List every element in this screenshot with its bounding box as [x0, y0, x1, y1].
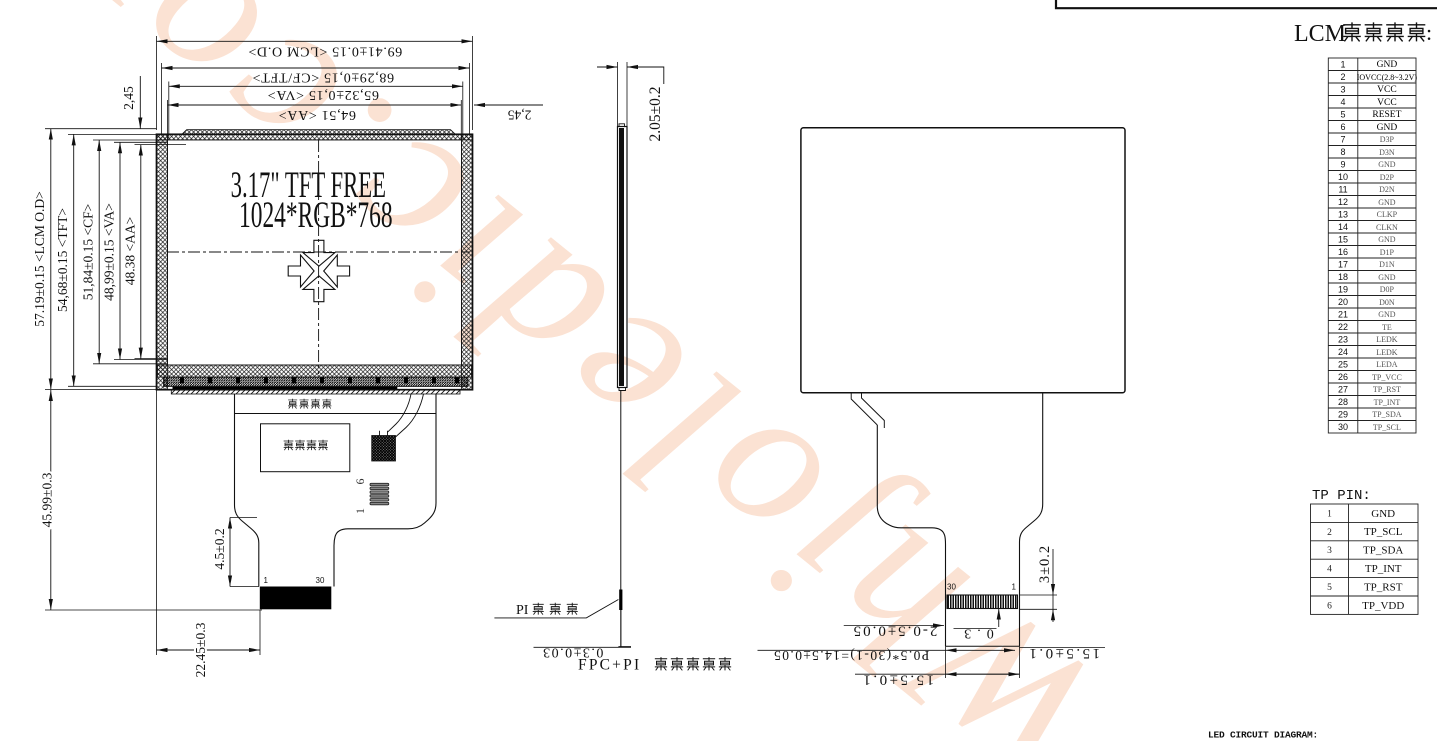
svg-text:GND: GND — [1378, 235, 1396, 244]
svg-text:VCC: VCC — [1377, 85, 1397, 95]
svg-text:D0N: D0N — [1379, 298, 1395, 307]
svg-text:TE: TE — [1382, 323, 1392, 332]
svg-text:2: 2 — [1327, 528, 1332, 538]
svg-text:69.41±0.15 <LCM O.D>: 69.41±0.15 <LCM O.D> — [248, 44, 403, 59]
svg-text:6: 6 — [1327, 601, 1332, 611]
svg-text:25: 25 — [1338, 359, 1348, 369]
svg-text:30: 30 — [316, 576, 325, 585]
svg-text:1: 1 — [264, 576, 269, 585]
svg-text:D3P: D3P — [1380, 135, 1395, 144]
svg-text:P0.5*(30-1)=14.5±0.05: P0.5*(30-1)=14.5±0.05 — [773, 648, 930, 663]
svg-text:PI: PI — [516, 603, 529, 618]
svg-text:2,45: 2,45 — [121, 86, 136, 110]
svg-text:15.5±0.1: 15.5±0.1 — [861, 672, 934, 688]
svg-text:1: 1 — [1327, 509, 1332, 519]
svg-text:GND: GND — [1378, 273, 1396, 282]
svg-text:51,84±0.15 <CF>: 51,84±0.15 <CF> — [81, 204, 96, 301]
svg-text:65,32±0,15 <VA>: 65,32±0,15 <VA> — [267, 87, 379, 102]
svg-text:GND: GND — [1377, 60, 1398, 70]
svg-text:3±0.2: 3±0.2 — [1037, 545, 1053, 583]
svg-text:30: 30 — [1338, 422, 1348, 432]
svg-text:4: 4 — [1327, 565, 1332, 575]
svg-text:RESET: RESET — [1372, 110, 1401, 120]
svg-text:2: 2 — [1340, 72, 1345, 82]
svg-text:17: 17 — [1338, 259, 1348, 269]
svg-text:48.38 <AA>: 48.38 <AA> — [122, 217, 137, 285]
svg-text:8: 8 — [1340, 147, 1345, 157]
svg-text:TP_RST: TP_RST — [1373, 385, 1401, 394]
svg-text:6: 6 — [353, 479, 367, 485]
svg-text:22.45±0.3: 22.45±0.3 — [193, 622, 208, 677]
svg-text:6: 6 — [1340, 122, 1345, 132]
svg-text:7: 7 — [1340, 134, 1345, 144]
svg-text:1: 1 — [1340, 60, 1345, 70]
svg-text:D3N: D3N — [1379, 148, 1395, 157]
svg-text:15.5±0.1: 15.5±0.1 — [1027, 645, 1100, 661]
svg-text:9: 9 — [1340, 159, 1345, 169]
svg-text:TP_VCC: TP_VCC — [1372, 373, 1402, 382]
svg-text:TP_INT: TP_INT — [1374, 398, 1401, 407]
svg-text:23: 23 — [1338, 334, 1348, 344]
svg-text:GND: GND — [1378, 160, 1396, 169]
svg-text:24: 24 — [1338, 347, 1348, 357]
svg-text:5: 5 — [1327, 583, 1332, 593]
svg-text:GND: GND — [1377, 123, 1398, 133]
svg-text:20: 20 — [1338, 297, 1348, 307]
svg-text:2.05±0.2: 2.05±0.2 — [647, 86, 664, 141]
svg-text:D2P: D2P — [1380, 173, 1395, 182]
svg-text:TP_SCL: TP_SCL — [1364, 526, 1403, 538]
svg-text:0.3: 0.3 — [958, 626, 994, 641]
svg-text:CLKN: CLKN — [1376, 223, 1398, 232]
svg-text:4.5±0.2: 4.5±0.2 — [212, 528, 227, 569]
svg-text:TP_SDA: TP_SDA — [1372, 410, 1402, 419]
svg-text:19: 19 — [1338, 284, 1348, 294]
svg-text:22: 22 — [1338, 322, 1348, 332]
svg-text:2-0.5±0.05: 2-0.5±0.05 — [852, 623, 938, 639]
svg-text:57.19±0.15 <LCM O.D>: 57.19±0.15 <LCM O.D> — [32, 191, 47, 327]
svg-text:TP_SDA: TP_SDA — [1363, 545, 1403, 557]
svg-text:TP_INT: TP_INT — [1365, 563, 1402, 575]
svg-text:TP_VDD: TP_VDD — [1362, 600, 1404, 612]
svg-text:4: 4 — [1340, 97, 1345, 107]
svg-text:1024*RGB*768: 1024*RGB*768 — [239, 195, 393, 236]
svg-text:LEDA: LEDA — [1376, 360, 1398, 369]
svg-text:LCM: LCM — [1294, 21, 1346, 47]
svg-text:IOVCC(2.8~3.2V): IOVCC(2.8~3.2V) — [1357, 73, 1418, 82]
svg-text:LEDK: LEDK — [1376, 335, 1398, 344]
svg-text:45.99±0.3: 45.99±0.3 — [40, 472, 55, 527]
svg-text:CLKP: CLKP — [1377, 210, 1398, 219]
svg-text:18: 18 — [1338, 272, 1348, 282]
svg-text:GND: GND — [1371, 508, 1395, 520]
svg-text:TP PIN:: TP PIN: — [1312, 488, 1371, 504]
svg-text:1: 1 — [353, 508, 367, 514]
svg-text:10: 10 — [1338, 172, 1348, 182]
svg-text:GND: GND — [1378, 198, 1396, 207]
svg-text:FPC+PI: FPC+PI — [578, 657, 641, 674]
svg-text:VCC: VCC — [1377, 98, 1397, 108]
svg-text:3: 3 — [1327, 546, 1332, 556]
svg-text:12: 12 — [1338, 197, 1348, 207]
svg-text:D1P: D1P — [1380, 248, 1395, 257]
svg-text:21: 21 — [1338, 309, 1348, 319]
svg-text:3: 3 — [1340, 85, 1345, 95]
svg-text:11: 11 — [1338, 184, 1347, 194]
svg-text:16: 16 — [1338, 247, 1348, 257]
svg-text:2,45: 2,45 — [507, 108, 531, 123]
svg-text:13: 13 — [1338, 209, 1348, 219]
svg-text:LEDK: LEDK — [1376, 348, 1398, 357]
svg-text:29: 29 — [1338, 409, 1348, 419]
svg-text:68,29±0,15 <CF/TFT>: 68,29±0,15 <CF/TFT> — [252, 69, 394, 84]
svg-text::: : — [1426, 20, 1432, 45]
svg-text:14: 14 — [1338, 222, 1348, 232]
svg-text:26: 26 — [1338, 372, 1348, 382]
svg-text:28: 28 — [1338, 397, 1348, 407]
svg-text:15: 15 — [1338, 234, 1348, 244]
svg-text:30: 30 — [947, 583, 956, 592]
svg-text:27: 27 — [1338, 384, 1348, 394]
svg-text:GND: GND — [1378, 310, 1396, 319]
svg-text:5: 5 — [1340, 110, 1345, 120]
svg-text:1: 1 — [1012, 583, 1017, 592]
svg-text:D0P: D0P — [1380, 285, 1395, 294]
svg-text:TP_SCL: TP_SCL — [1373, 423, 1401, 432]
svg-text:LED CIRCUIT DIAGRAM:: LED CIRCUIT DIAGRAM: — [1208, 730, 1318, 741]
svg-text:48,99±0.15 <VA>: 48,99±0.15 <VA> — [102, 203, 117, 301]
svg-text:54,68±0.15 <TFT>: 54,68±0.15 <TFT> — [55, 208, 70, 312]
svg-text:D2N: D2N — [1379, 185, 1395, 194]
svg-text:64,51 <AA>: 64,51 <AA> — [278, 107, 356, 122]
svg-text:D1N: D1N — [1379, 260, 1395, 269]
svg-text:TP_RST: TP_RST — [1364, 581, 1403, 593]
